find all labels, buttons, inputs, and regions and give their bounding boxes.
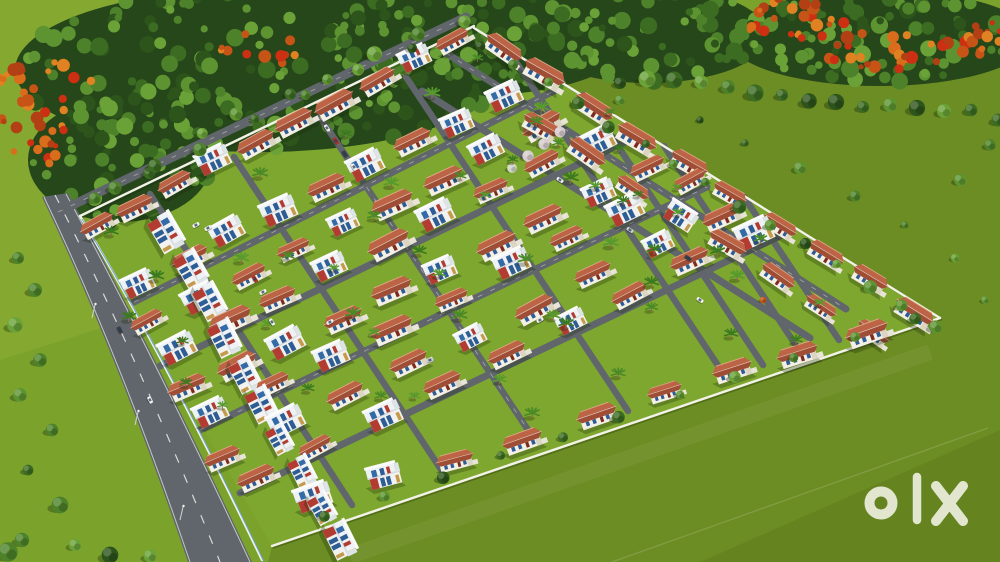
forest-tree — [30, 159, 37, 166]
flame-tree — [979, 46, 986, 53]
forest-tree — [921, 22, 934, 35]
light-pole-lamp — [94, 303, 96, 305]
forest-tree — [128, 92, 142, 106]
forest-tree — [130, 137, 139, 146]
flame-tree — [275, 50, 286, 61]
flame-tree — [928, 41, 935, 48]
forest-tree — [326, 24, 335, 33]
flame-tree — [29, 84, 38, 93]
forest-tree — [95, 131, 110, 146]
forest-tree — [275, 71, 284, 80]
forest-tree — [174, 16, 182, 24]
forest-tree — [779, 10, 787, 18]
flame-tree — [982, 31, 993, 42]
forest-tree — [877, 17, 884, 24]
forest-tree — [549, 35, 565, 51]
forest-tree — [108, 164, 116, 172]
forest-tree — [451, 68, 463, 80]
forest-tree — [579, 22, 589, 32]
forest-tree — [891, 73, 908, 90]
forest-tree — [61, 26, 76, 41]
forest-tree — [380, 10, 391, 21]
forest-tree — [920, 69, 929, 78]
forest-tree — [269, 83, 279, 93]
forest-tree — [411, 15, 422, 26]
forest-tree — [388, 101, 400, 113]
flame-tree — [856, 53, 865, 62]
forest-tree — [321, 37, 337, 53]
flame-tree — [887, 31, 899, 43]
flame-tree — [59, 126, 67, 134]
forest-tree — [146, 145, 158, 157]
forest-tree — [750, 40, 758, 48]
forest-tree — [590, 8, 600, 18]
flame-tree — [51, 59, 57, 65]
flame-tree — [895, 64, 904, 73]
flame-tree — [834, 41, 841, 48]
forest-tree — [66, 136, 74, 144]
flame-tree — [798, 34, 806, 42]
forest-tree — [567, 41, 577, 51]
forest-tree — [73, 108, 89, 124]
flame-tree — [57, 59, 70, 72]
flame-tree — [47, 140, 54, 147]
flame-tree — [1, 119, 6, 124]
forest-tree — [681, 17, 689, 25]
forest-tree — [554, 6, 570, 22]
forest-tree — [547, 22, 560, 35]
flame-tree — [27, 139, 34, 146]
flame-tree — [11, 148, 17, 154]
forest-tree — [215, 87, 225, 97]
forest-tree — [807, 65, 817, 75]
flame-tree — [33, 145, 42, 154]
flame-tree — [45, 68, 51, 74]
flame-tree — [957, 46, 969, 58]
flame-tree — [787, 3, 798, 14]
forest-tree — [640, 17, 657, 34]
forest-tree — [292, 57, 309, 74]
forest-tree — [726, 43, 743, 60]
flame-tree — [31, 112, 44, 125]
forest-tree — [938, 58, 949, 69]
forest-tree — [155, 75, 170, 90]
flame-tree — [859, 64, 864, 69]
flame-tree — [838, 17, 849, 28]
forest-tree — [169, 106, 186, 123]
forest-tree — [258, 61, 276, 79]
flame-tree — [7, 63, 20, 76]
forest-tree — [711, 40, 719, 48]
forest-tree — [142, 121, 154, 133]
forest-tree — [469, 17, 476, 24]
forest-tree — [29, 51, 41, 63]
forest-tree — [795, 50, 809, 64]
forest-tree — [96, 119, 107, 130]
forest-tree — [775, 44, 786, 55]
forest-tree — [925, 56, 934, 65]
forest-tree — [255, 41, 263, 49]
forest-tree — [499, 69, 509, 79]
forest-tree — [902, 3, 914, 15]
forest-tree — [42, 170, 52, 180]
flame-tree — [868, 60, 881, 73]
flame-tree — [799, 11, 810, 22]
forest-tree — [686, 8, 693, 15]
flame-tree — [87, 77, 95, 85]
forest-tree — [378, 21, 387, 30]
forest-tree — [335, 54, 343, 62]
forest-tree — [189, 81, 199, 91]
forest-tree — [939, 71, 947, 79]
light-pole-lamp — [182, 505, 184, 507]
flame-tree — [990, 20, 995, 25]
forest-tree — [148, 22, 158, 32]
forest-tree — [159, 120, 168, 129]
flame-tree — [827, 21, 833, 27]
flame-tree — [943, 39, 948, 44]
flame-tree — [811, 19, 824, 32]
forest-tree — [246, 65, 255, 74]
forest-tree — [857, 16, 869, 28]
forest-tree — [242, 4, 250, 12]
forest-tree — [808, 35, 816, 43]
forest-tree — [787, 13, 796, 22]
flame-tree — [845, 53, 856, 64]
forest-tree — [108, 20, 120, 32]
flame-tree — [747, 22, 757, 32]
forest-tree — [140, 83, 156, 99]
flame-tree — [788, 31, 794, 37]
forest-tree — [167, 93, 175, 101]
forest-tree — [472, 83, 480, 91]
forest-tree — [90, 38, 108, 56]
flame-tree — [291, 51, 299, 59]
flame-tree — [48, 127, 56, 135]
forest-tree — [366, 100, 373, 107]
listing-image: olx — [0, 0, 1000, 562]
forest-tree — [528, 24, 546, 42]
forest-tree — [602, 70, 615, 83]
forest-tree — [780, 64, 789, 73]
forest-tree — [337, 33, 352, 48]
forest-tree — [214, 118, 223, 127]
flame-tree — [45, 159, 53, 167]
forest-tree — [686, 57, 695, 66]
forest-tree — [139, 36, 156, 53]
flame-tree — [17, 97, 24, 104]
forest-tree — [261, 26, 274, 39]
forest-tree — [664, 53, 678, 67]
light-pole-lamp — [137, 410, 139, 412]
forest-tree — [701, 1, 719, 19]
flame-tree — [858, 29, 867, 38]
flame-tree — [258, 50, 271, 63]
forest-tree — [507, 26, 522, 41]
flame-tree — [756, 26, 763, 33]
forest-tree — [130, 153, 145, 168]
forest-tree — [346, 46, 362, 62]
forest-tree — [83, 126, 95, 138]
flame-tree — [830, 55, 839, 64]
flame-tree — [219, 45, 225, 51]
forest-tree — [161, 55, 178, 72]
flame-tree — [60, 106, 68, 114]
forest-tree — [617, 36, 633, 52]
flame-tree — [59, 95, 67, 103]
forest-tree — [918, 1, 930, 13]
forest-tree — [362, 121, 371, 130]
forest-tree — [351, 10, 366, 25]
forest-tree — [342, 12, 349, 19]
forest-tree — [564, 52, 581, 69]
flame-tree — [841, 31, 854, 44]
forest-tree — [201, 25, 208, 32]
forest-tree — [599, 24, 606, 31]
forest-tree — [581, 55, 588, 62]
forest-tree — [402, 6, 414, 18]
forest-tree — [885, 12, 894, 21]
forest-tree — [166, 6, 174, 14]
forest-tree — [226, 29, 244, 47]
forest-tree — [201, 58, 218, 75]
forest-tree — [843, 2, 857, 16]
forest-tree — [954, 18, 967, 31]
forest-tree — [398, 105, 414, 121]
forest-tree — [606, 38, 615, 47]
flame-tree — [757, 8, 762, 13]
flame-tree — [242, 50, 251, 59]
forest-tree — [64, 154, 76, 166]
forest-tree — [205, 42, 214, 51]
flame-tree — [11, 122, 23, 134]
flame-tree — [68, 72, 79, 83]
flame-tree — [50, 150, 61, 161]
forest-tree — [35, 26, 52, 43]
flame-tree — [864, 61, 871, 68]
forest-tree — [570, 8, 580, 18]
forest-tree — [68, 144, 77, 153]
township-aerial-render — [0, 0, 1000, 562]
forest-tree — [95, 153, 109, 167]
forest-tree — [987, 46, 995, 54]
flame-tree — [285, 35, 295, 45]
forest-tree — [116, 118, 133, 135]
forest-tree — [160, 138, 171, 149]
flame-tree — [933, 58, 940, 65]
forest-tree — [659, 43, 666, 50]
forest-tree — [714, 53, 724, 63]
forest-tree — [355, 26, 365, 36]
forest-tree — [478, 9, 489, 20]
forest-tree — [140, 102, 153, 115]
forest-tree — [879, 72, 891, 84]
forest-tree — [128, 77, 136, 85]
forest-tree — [77, 38, 92, 53]
flame-tree — [818, 31, 827, 40]
flame-tree — [901, 53, 908, 60]
flame-tree — [771, 15, 778, 22]
flame-tree — [903, 31, 911, 39]
forest-tree — [115, 14, 122, 21]
forest-tree — [101, 100, 118, 117]
forest-tree — [509, 7, 526, 24]
forest-tree — [608, 17, 616, 25]
forest-tree — [69, 16, 79, 26]
forest-tree — [154, 37, 166, 49]
flame-tree — [241, 30, 249, 38]
forest-tree — [283, 12, 295, 24]
